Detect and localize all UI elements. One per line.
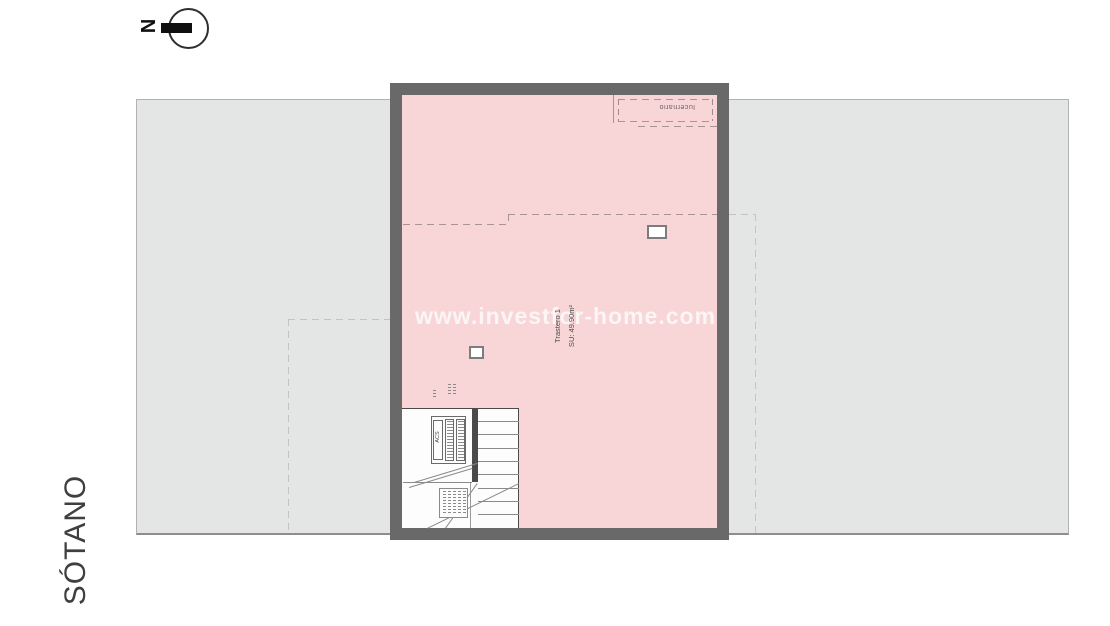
- overlay-dash-right-segment: [508, 214, 717, 215]
- micro-text-strokes: [448, 491, 451, 515]
- overlay-dash-step: [508, 214, 509, 224]
- skylight-dash-left: [618, 99, 619, 121]
- projection-outline-left-horizontal: [288, 319, 390, 320]
- skylight-dash-bottom: [618, 121, 712, 122]
- dimension-micro-text: [433, 390, 436, 397]
- stair-tread: [478, 514, 519, 515]
- stair-tread: [478, 474, 519, 475]
- projection-outline-right-vertical: [755, 214, 756, 533]
- floor-title: SÓTANO: [59, 470, 93, 610]
- stair-tread: [478, 434, 519, 435]
- stair-tread: [478, 501, 519, 502]
- stair-tread: [478, 488, 519, 489]
- stair-inner-wall: [472, 408, 478, 482]
- dimension-micro-text: [448, 384, 451, 396]
- room-area: SU: 49.90m²: [567, 298, 577, 354]
- projection-outline-right-horizontal: [729, 214, 755, 215]
- pillar-lower: [469, 346, 484, 359]
- micro-text-strokes: [458, 491, 461, 515]
- micro-text-strokes: [461, 421, 464, 459]
- skylight-dash-extension: [638, 126, 717, 127]
- micro-text-strokes: [463, 491, 466, 515]
- north-arrow-bar-icon: [161, 23, 192, 33]
- stair-tread: [478, 421, 519, 422]
- micro-text-strokes: [453, 491, 456, 515]
- room-name: Trastero 1: [553, 298, 563, 354]
- dimension-micro-text: [453, 384, 456, 396]
- skylight-solid-line: [613, 95, 614, 123]
- acs-label: ACS: [435, 422, 441, 452]
- micro-text-strokes: [450, 421, 453, 459]
- stair-tread: [478, 448, 519, 449]
- micro-text-strokes: [443, 491, 446, 515]
- skylight-dash-right: [712, 99, 713, 121]
- projection-outline-left-vertical: [288, 319, 289, 533]
- north-letter: N: [135, 14, 159, 38]
- overlay-dash-left-segment: [403, 224, 508, 225]
- stair-tread: [478, 461, 519, 462]
- basement-floor-plan-page: N SÓTANO lucernario www.investfor-home.c…: [0, 0, 1110, 626]
- skylight-label: lucernario: [645, 98, 709, 110]
- pillar-upper: [647, 225, 667, 239]
